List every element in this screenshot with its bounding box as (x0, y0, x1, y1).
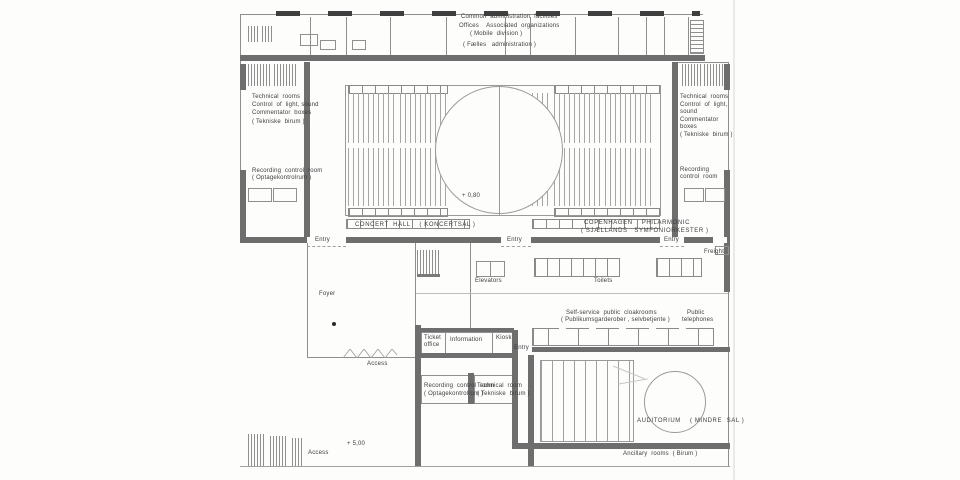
left-wall-thick-1 (240, 64, 246, 90)
partition-line (446, 17, 447, 55)
label-toilets: Toilets (594, 278, 612, 285)
label-right-tech-5: boxes (680, 124, 697, 131)
toilet-cells (534, 258, 620, 277)
hall-left-wall (304, 62, 310, 237)
label-right-tech-4: Commentator (680, 117, 719, 124)
partition-line (646, 17, 647, 55)
label-access-plaza: Access (308, 450, 329, 457)
cloakroom-gap (649, 327, 656, 345)
label-admin-3: ( Mobile division ) (470, 31, 522, 38)
label-ticket-1: Ticket (424, 335, 441, 342)
seating-block (605, 93, 651, 143)
label-right-tech-1: Technical rooms (680, 94, 728, 101)
label-information: Information (450, 337, 482, 344)
entry-threshold (501, 246, 531, 247)
label-left-tech-4: ( Tekniske birum ) (252, 119, 305, 126)
access-ramp (270, 436, 288, 466)
admin-hatch-room (262, 26, 274, 42)
label-phones-1: Public (687, 310, 705, 317)
cloakroom-gap (559, 327, 566, 345)
partition-line (688, 17, 689, 55)
hall-center-line (499, 85, 500, 215)
auditorium-left-wall (528, 355, 534, 467)
left-wing-hatch-room (248, 64, 272, 86)
label-entry-left: Entry (315, 237, 330, 244)
label-hall-level: + 0,80 (462, 193, 480, 200)
label-admin-4: ( Fælles administration ) (463, 42, 536, 49)
label-left-tech-2: Control of light, sound (252, 102, 319, 109)
ticket-divider (492, 332, 493, 353)
label-freight: Freight (704, 249, 724, 256)
label-tech2-2: ( Tekniske birum ) (477, 391, 530, 398)
label-left-tech-3: Commentator boxes (252, 110, 311, 117)
right-wall-thick-1 (724, 64, 730, 90)
sheet-bottom-line (240, 466, 730, 467)
wall-seg (512, 330, 518, 358)
label-hall-name: CONCERT HALL ( KONCERTSAL ) (355, 222, 476, 229)
label-rec2-2: ( Optagekontrolrum ) (424, 391, 483, 398)
right-wing-room (705, 188, 725, 202)
cloakroom-gap (619, 327, 626, 345)
label-entry-right: Entry (664, 237, 679, 244)
left-wing-room (248, 188, 272, 202)
admin-stair (690, 20, 704, 54)
band-partition (470, 243, 471, 330)
freight-gap (713, 237, 727, 243)
label-tech2-1: Technical room (477, 383, 522, 390)
right-wall-thick-2 (724, 170, 730, 237)
admin-hatch-room (248, 26, 260, 42)
elevator-cell (490, 261, 505, 277)
label-ticket-2: office (424, 342, 439, 349)
floor-plan-sheet: Common administration facilitiesOffices … (0, 0, 960, 480)
label-kiosk: Kiosk (496, 335, 512, 342)
label-admin-2: Offices Associated organizations (459, 23, 559, 30)
hall-right-wall (672, 62, 678, 237)
label-left-rec-1: Recording control room (252, 168, 323, 175)
label-left-rec-2: ( Optagekontrolrum ) (252, 175, 311, 182)
label-entry-ticket: Entry (514, 345, 529, 352)
commentator-box-row (554, 208, 660, 217)
seating-block (605, 148, 651, 206)
label-cloak-1: Self-service public cloakrooms (566, 310, 657, 317)
label-ancillary: Ancillary rooms ( Birum ) (623, 451, 697, 458)
entry-threshold (307, 246, 346, 247)
label-right-rec-1: Recording (680, 167, 709, 174)
paper-edge (733, 0, 735, 480)
right-wing-hatch-room (682, 64, 702, 86)
cloakroom-gap (589, 327, 596, 345)
partition-line (575, 17, 576, 55)
access-ramp (292, 438, 304, 466)
cloakroom-gap (679, 327, 686, 345)
label-plaza-level: + 5,00 (347, 441, 365, 448)
label-right-rec-2: control room (680, 174, 718, 181)
admin-bottom-wall (240, 55, 705, 61)
label-elevators: Elevators (475, 278, 502, 285)
elevator-cell (476, 261, 491, 277)
ticket-divider (445, 332, 446, 353)
foyer-left-wall (307, 243, 308, 358)
stairs-zigzag (343, 349, 397, 358)
service-cells (656, 258, 702, 277)
foyer-stair-edge (417, 274, 440, 277)
admin-furniture (320, 40, 336, 50)
partition-line (664, 17, 665, 55)
auditorium-seating (540, 360, 634, 442)
commentator-box-row (348, 208, 448, 217)
wall-seg (512, 357, 518, 445)
band-partition (415, 243, 416, 330)
left-wing-room (273, 188, 297, 202)
column-dot (332, 322, 336, 326)
balcony-line (416, 293, 728, 294)
cloakroom-wall (532, 347, 730, 352)
label-orch-2: ( SJÆLLANDS SYMFONIORKESTER ) (581, 228, 709, 235)
label-cloak-2: ( Publikumsgarderober , selvbetjente ) (561, 317, 670, 324)
label-right-tech-2: Control of light, (680, 102, 728, 109)
access-ramp (248, 434, 266, 466)
lower-bottom-wall (512, 443, 730, 449)
seating-block (348, 93, 394, 143)
partition-line (618, 17, 619, 55)
left-wall-thick-2 (240, 170, 246, 237)
label-orch-1: COPENHAGEN PHILARMONIC (584, 220, 690, 227)
label-admin-1: Common administration facilities (461, 14, 558, 21)
entry-threshold (660, 246, 684, 247)
label-access-foyer: Access (367, 361, 388, 368)
label-auditorium: AUDITORIUM ( MINDRE SAL ) (637, 418, 744, 425)
admin-furniture (352, 40, 366, 50)
partition-line (346, 17, 347, 55)
label-right-tech-3: sound (680, 109, 697, 116)
label-entry-center: Entry (507, 237, 522, 244)
label-right-tech-6: ( Tekniske birum ) (680, 132, 733, 139)
foyer-stair (417, 250, 440, 276)
seating-block (348, 148, 394, 206)
label-left-tech-1: Technical rooms (252, 94, 300, 101)
ticket-bottom-wall (415, 353, 518, 358)
left-wing-hatch-room (274, 64, 298, 86)
right-wing-top-line (678, 62, 728, 63)
right-wing-hatch-room (704, 64, 724, 86)
label-foyer: Foyer (319, 291, 335, 298)
right-wing-room (684, 188, 704, 202)
label-phones-2: telephones (682, 317, 713, 324)
admin-furniture (300, 34, 318, 46)
partition-line (390, 17, 391, 55)
